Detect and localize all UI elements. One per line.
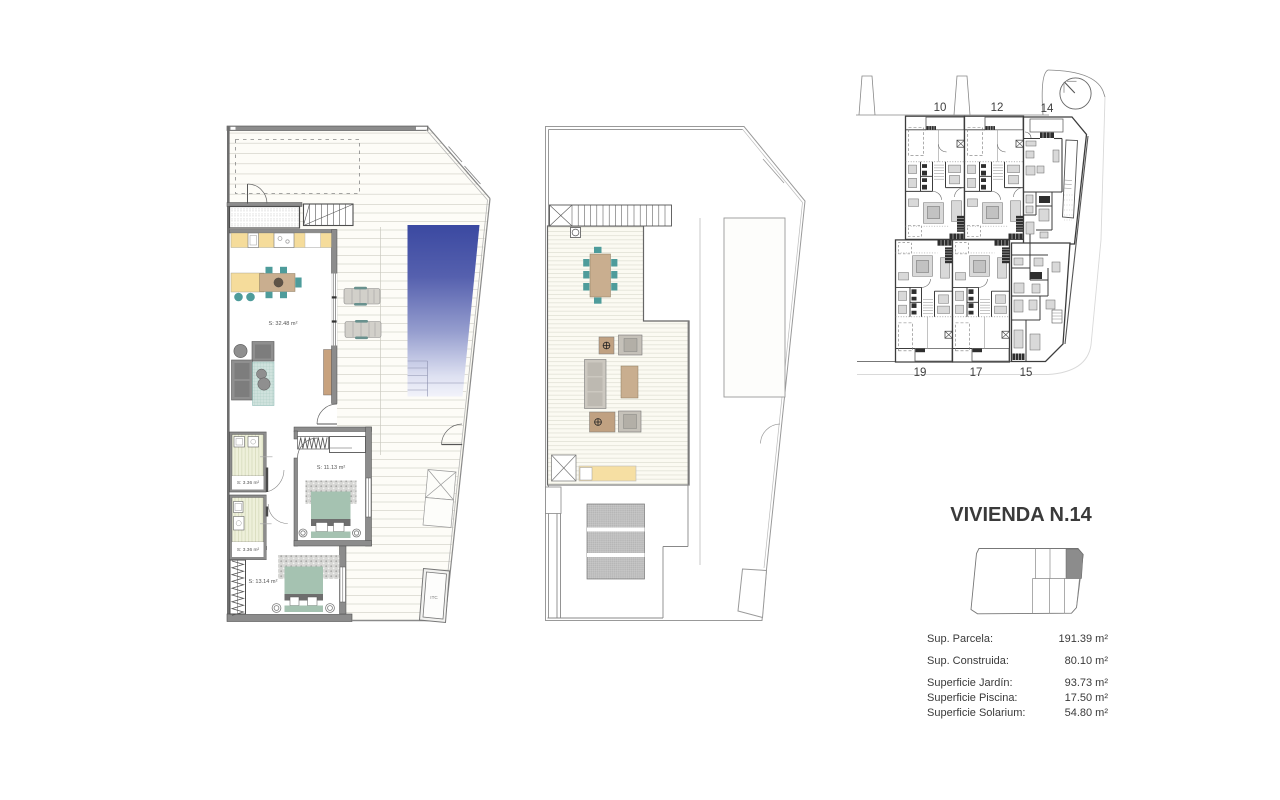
svg-text:17.50 m²: 17.50 m² (1065, 692, 1109, 704)
svg-text:54.80 m²: 54.80 m² (1065, 707, 1109, 719)
svg-text:S: 11.13 m²: S: 11.13 m² (317, 465, 346, 471)
svg-text:19: 19 (914, 367, 927, 379)
svg-text:17: 17 (970, 367, 983, 379)
svg-text:14: 14 (1041, 103, 1054, 115)
svg-text:191.39 m²: 191.39 m² (1058, 633, 1108, 645)
svg-text:S: 13.14 m²: S: 13.14 m² (249, 579, 278, 585)
svg-text:12: 12 (991, 102, 1004, 114)
svg-text:Sup. Construida:: Sup. Construida: (927, 655, 1009, 667)
svg-text:ITC: ITC (430, 595, 438, 600)
svg-text:93.73 m²: 93.73 m² (1065, 677, 1109, 689)
svg-text:VIVIENDA N.14: VIVIENDA N.14 (950, 504, 1092, 526)
svg-text:80.10 m²: 80.10 m² (1065, 655, 1109, 667)
svg-text:15: 15 (1020, 367, 1033, 379)
svg-text:Sup. Parcela:: Sup. Parcela: (927, 633, 993, 645)
svg-text:S: 3.36 m²: S: 3.36 m² (237, 480, 260, 486)
svg-text:S: 32.48 m²: S: 32.48 m² (269, 321, 298, 327)
svg-text:Superficie Solarium:: Superficie Solarium: (927, 707, 1025, 719)
svg-text:S: 3.36 m²: S: 3.36 m² (237, 547, 260, 553)
svg-text:Superficie Piscina:: Superficie Piscina: (927, 692, 1018, 704)
svg-text:Superficie Jardín:: Superficie Jardín: (927, 677, 1013, 689)
svg-text:10: 10 (934, 102, 947, 114)
